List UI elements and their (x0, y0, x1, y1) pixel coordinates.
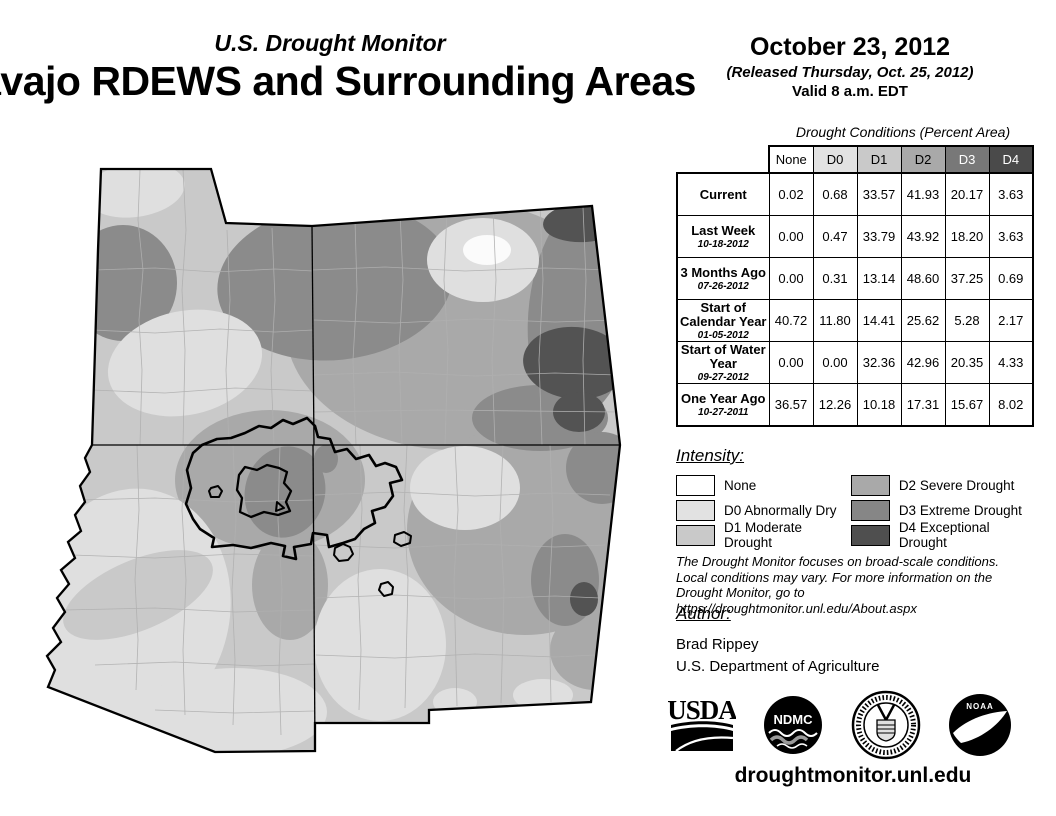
d0-swatch (676, 500, 715, 521)
usda-logo: USDA (668, 697, 736, 753)
legend-item-d3: D3 Extreme Drought (851, 500, 1038, 520)
legend-item-d4: D4 Exceptional Drought (851, 525, 1038, 545)
d4-swatch (851, 525, 890, 546)
date-block: October 23, 2012 (Released Thursday, Oct… (700, 33, 1000, 100)
table-row: 3 Months Ago 07-26-2012 0.000.31 13.1448… (677, 258, 1033, 300)
agency-logos: USDA NDMC NOAA (668, 690, 1012, 760)
row-label: Last Week 10-18-2012 (677, 216, 769, 258)
table-row: Current 0.020.68 33.5741.93 20.173.63 (677, 173, 1033, 216)
table-row: One Year Ago 10-27-2011 36.5712.26 10.18… (677, 384, 1033, 427)
release-date: (Released Thursday, Oct. 25, 2012) (700, 64, 1000, 81)
author-org: U.S. Department of Agriculture (676, 658, 879, 675)
col-header-none: None (769, 146, 813, 173)
row-label: Start of Calendar Year 01-05-2012 (677, 300, 769, 342)
d2-swatch (851, 475, 890, 496)
row-label: 3 Months Ago 07-26-2012 (677, 258, 769, 300)
legend-item-none: None (676, 475, 851, 495)
region-title: Navajo RDEWS and Surrounding Areas (0, 58, 696, 105)
col-header-d1: D1 (857, 146, 901, 173)
noaa-logo-text: NOAA (966, 702, 994, 711)
legend-title: Intensity: (676, 446, 1038, 466)
program-title: U.S. Drought Monitor (130, 30, 530, 57)
valid-time: Valid 8 a.m. EDT (700, 83, 1000, 100)
commerce-seal (851, 690, 921, 760)
ndmc-logo-text: NDMC (774, 712, 814, 727)
table-title: Drought Conditions (Percent Area) (772, 124, 1034, 140)
col-header-d3: D3 (945, 146, 989, 173)
intensity-legend: Intensity: None D0 Abnormally Dry D1 Mod… (676, 446, 1038, 545)
author-block: Author: Brad Rippey U.S. Department of A… (676, 604, 879, 675)
ndmc-logo: NDMC (763, 695, 823, 755)
col-header-d2: D2 (901, 146, 945, 173)
table-header-row: None D0 D1 D2 D3 D4 (677, 146, 1033, 173)
table-row: Start of Water Year 09-27-2012 0.000.00 … (677, 342, 1033, 384)
drought-map-container (35, 150, 660, 810)
row-label: One Year Ago 10-27-2011 (677, 384, 769, 427)
usda-logo-text: USDA (668, 697, 736, 725)
d1-swatch (676, 525, 715, 546)
legend-item-d1: D1 Moderate Drought (676, 525, 851, 545)
site-url: droughtmonitor.unl.edu (676, 764, 1030, 788)
col-header-d0: D0 (813, 146, 857, 173)
author-title: Author: (676, 604, 879, 624)
table-row: Start of Calendar Year 01-05-2012 40.721… (677, 300, 1033, 342)
row-label: Start of Water Year 09-27-2012 (677, 342, 769, 384)
map-date: October 23, 2012 (700, 33, 1000, 62)
drought-conditions-table: None D0 D1 D2 D3 D4 Current 0.020.68 33.… (676, 145, 1034, 427)
drought-shading (35, 150, 660, 810)
legend-item-d2: D2 Severe Drought (851, 475, 1038, 495)
legend-item-d0: D0 Abnormally Dry (676, 500, 851, 520)
drought-map (35, 150, 660, 810)
table-row: Last Week 10-18-2012 0.000.47 33.7943.92… (677, 216, 1033, 258)
col-header-d4: D4 (989, 146, 1033, 173)
author-name: Brad Rippey (676, 636, 879, 653)
noaa-logo: NOAA (948, 693, 1012, 757)
d3-swatch (851, 500, 890, 521)
none-swatch (676, 475, 715, 496)
row-label: Current (677, 173, 769, 216)
table-corner-cell (677, 146, 769, 173)
